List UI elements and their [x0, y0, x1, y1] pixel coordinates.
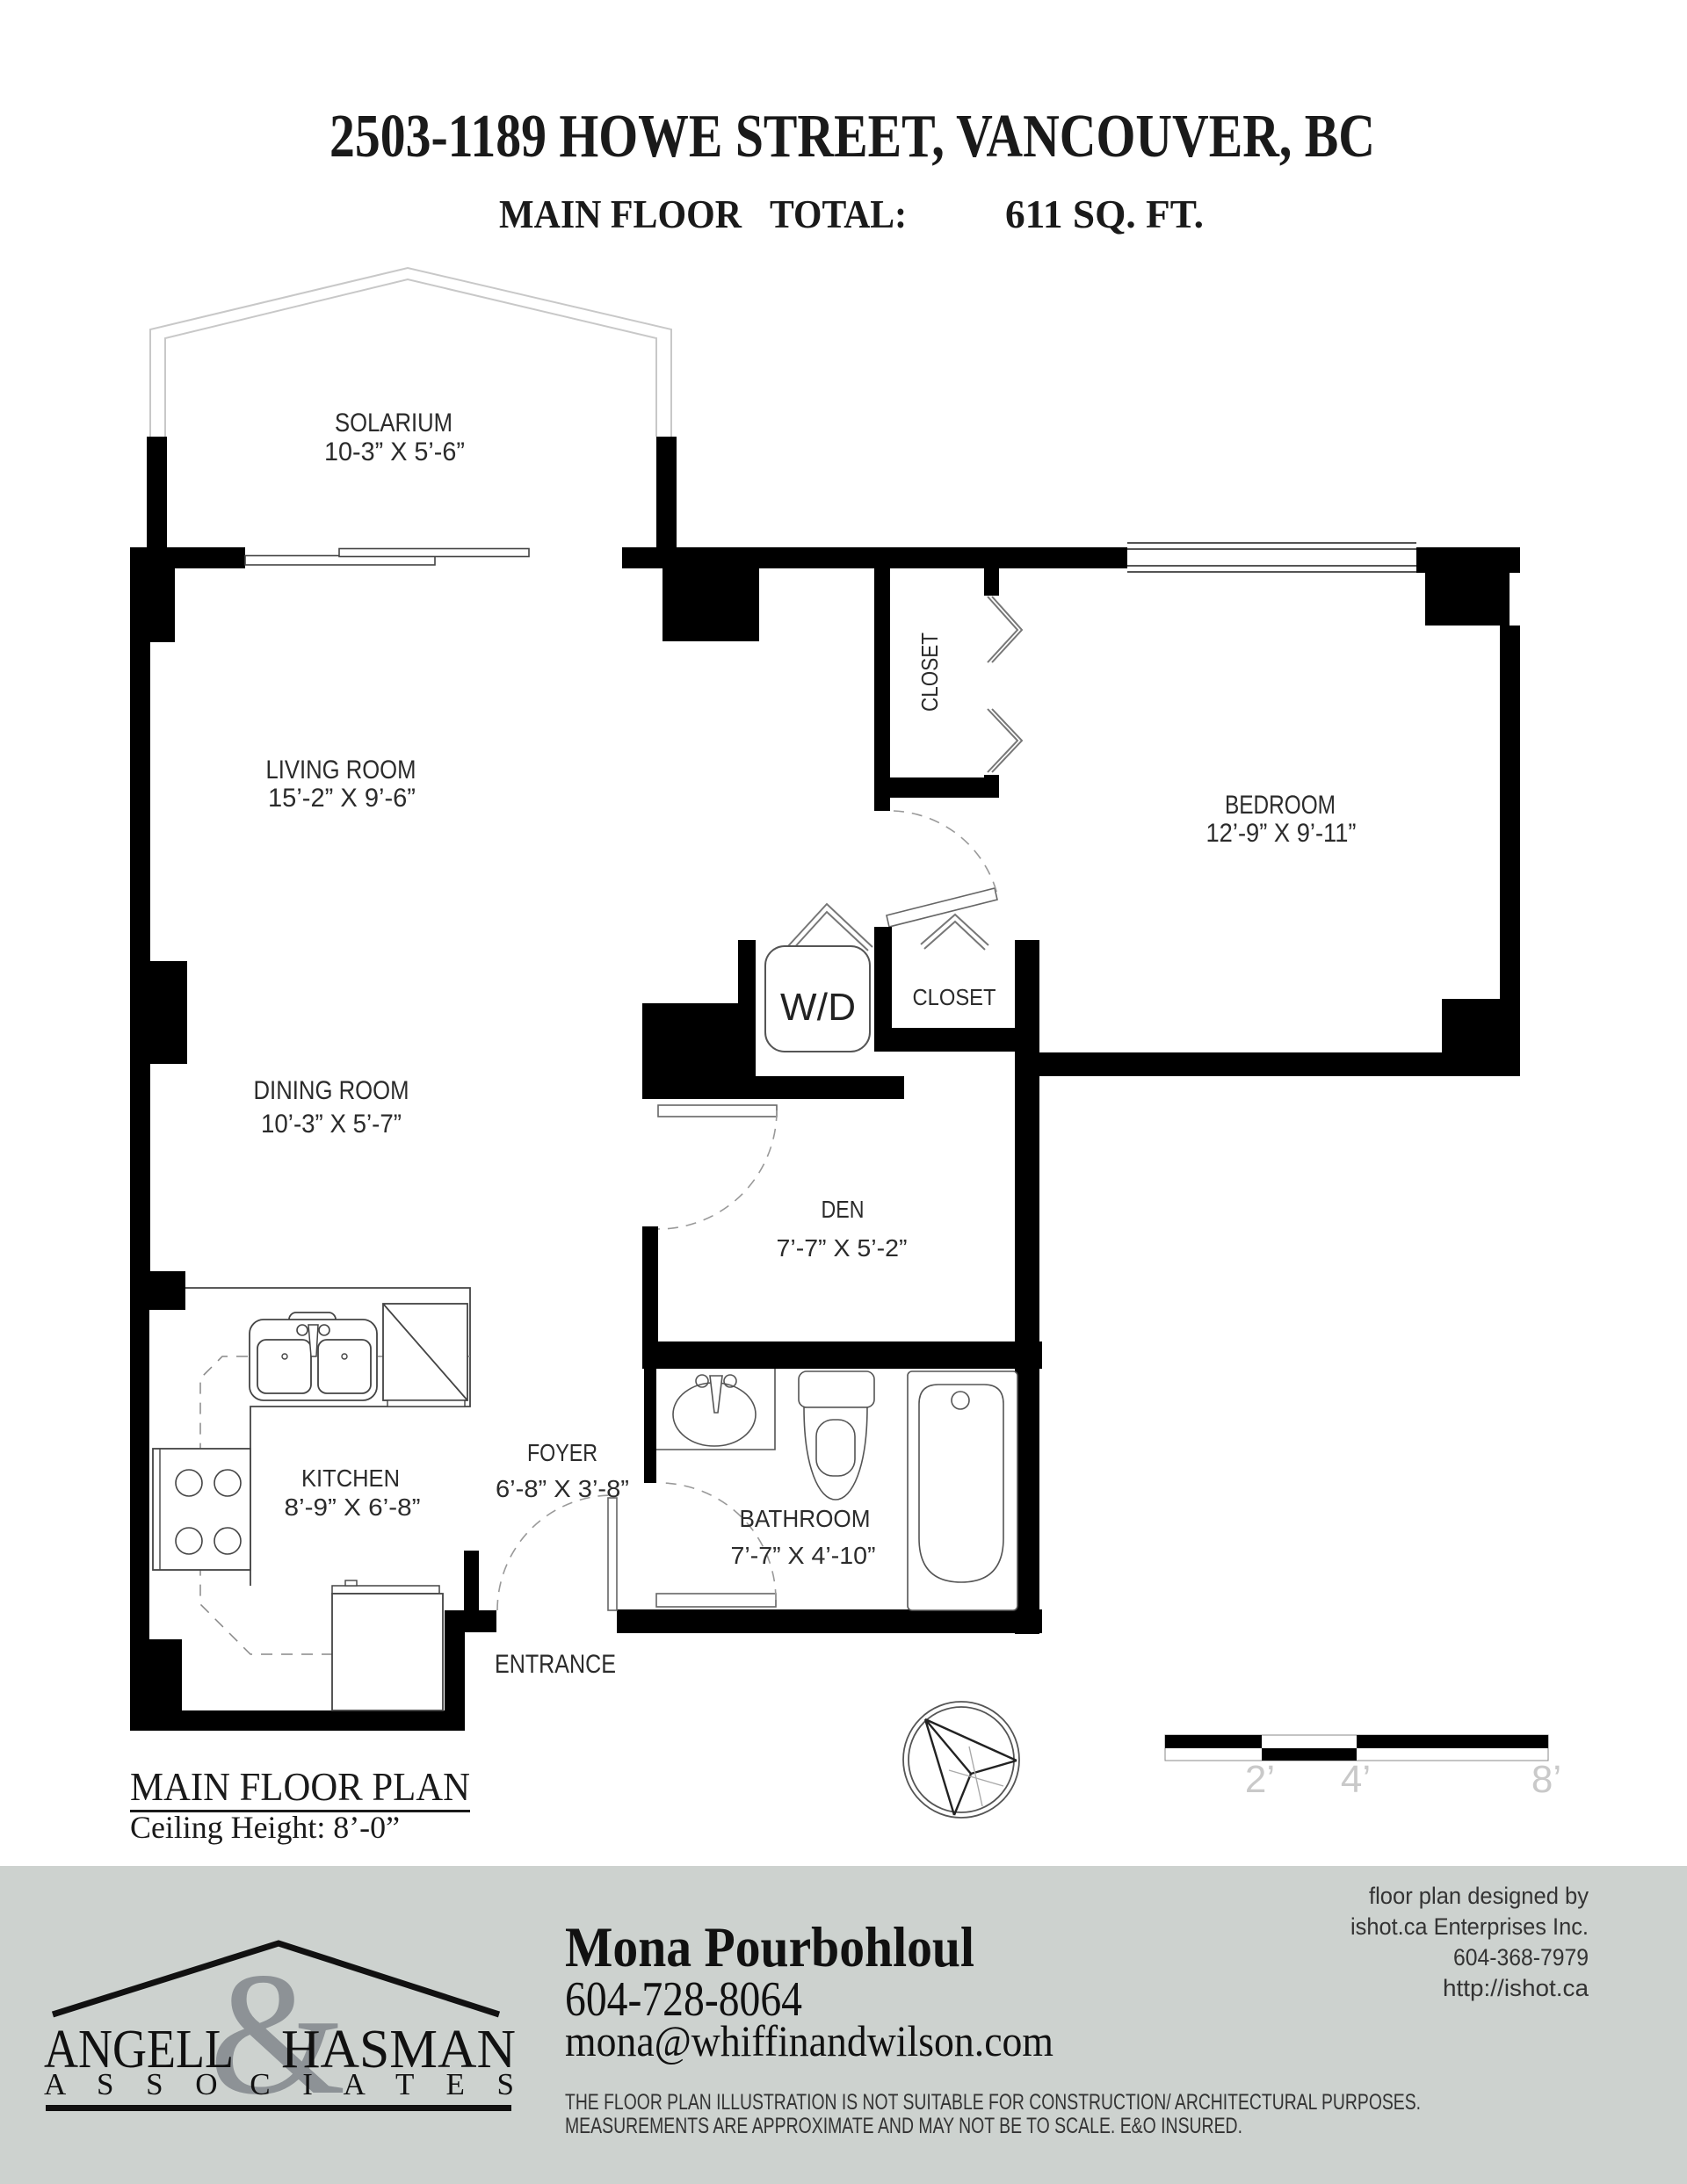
- svg-text:10-3” X 5’-6”: 10-3” X 5’-6”: [324, 438, 465, 466]
- svg-text:Ceiling Height: 8’-0”: Ceiling Height: 8’-0”: [130, 1810, 400, 1845]
- svg-text:THE FLOOR PLAN ILLUSTRATION IS: THE FLOOR PLAN ILLUSTRATION IS NOT SUITA…: [565, 2090, 1421, 2115]
- svg-text:MEASUREMENTS ARE APPROXIMATE A: MEASUREMENTS ARE APPROXIMATE AND MAY NOT…: [565, 2114, 1242, 2138]
- svg-text:2’: 2’: [1245, 1758, 1275, 1801]
- svg-text:CLOSET: CLOSET: [916, 633, 943, 712]
- svg-text:BATHROOM: BATHROOM: [740, 1505, 871, 1532]
- svg-text:CLOSET: CLOSET: [913, 984, 996, 1010]
- svg-text:Mona Pourbohloul: Mona Pourbohloul: [565, 1916, 974, 1979]
- svg-text:FOYER: FOYER: [527, 1439, 597, 1466]
- svg-text:6’-8” X 3’-8”: 6’-8” X 3’-8”: [496, 1475, 629, 1502]
- svg-text:ishot.ca Enterprises Inc.: ishot.ca Enterprises Inc.: [1350, 1913, 1589, 1940]
- svg-text:7’-7” X 4’-10”: 7’-7” X 4’-10”: [731, 1542, 876, 1569]
- svg-text:http://ishot.ca: http://ishot.ca: [1443, 1975, 1589, 2001]
- svg-text:4’: 4’: [1341, 1758, 1371, 1801]
- svg-text:floor plan designed by: floor plan designed by: [1369, 1883, 1589, 1909]
- svg-text:W/D: W/D: [780, 986, 856, 1029]
- svg-text:KITCHEN: KITCHEN: [301, 1464, 400, 1492]
- svg-text:8’: 8’: [1531, 1758, 1561, 1801]
- svg-text:mona@whiffinandwilson.com: mona@whiffinandwilson.com: [565, 2016, 1053, 2065]
- svg-text:10’-3” X 5’-7”: 10’-3” X 5’-7”: [261, 1110, 402, 1139]
- svg-text:12’-9” X 9’-11”: 12’-9” X 9’-11”: [1206, 819, 1357, 848]
- svg-text:MAIN FLOOR PLAN: MAIN FLOOR PLAN: [130, 1764, 470, 1809]
- svg-text:DINING ROOM: DINING ROOM: [254, 1076, 409, 1105]
- svg-text:DEN: DEN: [822, 1196, 865, 1223]
- svg-text:7’-7” X 5’-2”: 7’-7” X 5’-2”: [777, 1234, 908, 1262]
- svg-text:15’-2” X 9’-6”: 15’-2” X 9’-6”: [268, 784, 416, 813]
- svg-text:BEDROOM: BEDROOM: [1225, 791, 1336, 820]
- svg-text:MAIN FLOOR: MAIN FLOOR: [499, 192, 742, 236]
- svg-text:TOTAL:: TOTAL:: [770, 192, 907, 236]
- svg-text:ENTRANCE: ENTRANCE: [495, 1650, 616, 1679]
- svg-text:604-368-7979: 604-368-7979: [1453, 1944, 1589, 1971]
- svg-text:LIVING ROOM: LIVING ROOM: [266, 756, 416, 785]
- svg-text:2503-1189 HOWE STREET, VANCOUV: 2503-1189 HOWE STREET, VANCOUVER, BC: [329, 103, 1375, 170]
- svg-text:SOLARIUM: SOLARIUM: [335, 409, 453, 438]
- svg-text:611 SQ. FT.: 611 SQ. FT.: [1005, 192, 1204, 236]
- svg-text:8’-9” X 6’-8”: 8’-9” X 6’-8”: [285, 1493, 421, 1521]
